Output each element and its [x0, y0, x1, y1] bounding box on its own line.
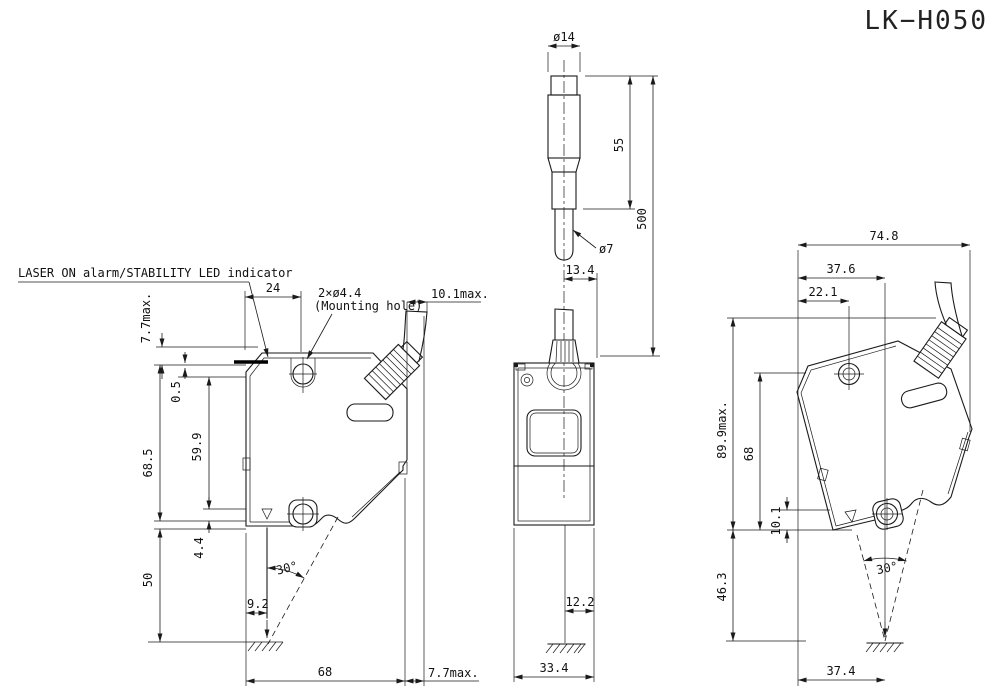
dim-right-foot-height: 10.1 [769, 507, 783, 536]
dim-side-cable-protrusion: 10.1max. [431, 287, 489, 301]
label-slot [347, 404, 393, 421]
dim-connector-len: 55 [612, 138, 626, 152]
dim-front-width: 33.4 [540, 661, 569, 675]
dim-side-spot-offset: 9.2 [247, 597, 269, 611]
cable-gland-front [549, 340, 579, 363]
dim-right-body-height: 68 [742, 447, 756, 461]
dim-right-angle: 30° [875, 559, 899, 577]
dim-side-top-protrusion: 7.7max. [139, 293, 153, 344]
dim-right-to-hole: 22.1 [809, 285, 838, 299]
dim-right-overall-width: 74.8 [870, 229, 899, 243]
dim-side-body-height: 68.5 [141, 449, 155, 478]
dim-side-standoff: 50 [141, 573, 155, 587]
reference-surface-right [726, 641, 903, 652]
cable-gland-right [914, 315, 971, 378]
dim-side-hole-offset: 24 [266, 281, 280, 295]
mount-hole-label-note: (Mounting hole) [314, 299, 422, 313]
right-view: 30° 74.8 37.6 22.1 89.9max. 68 10.1 46.3… [715, 229, 972, 686]
drawing-canvas: LK−H050 ø14 55 500 ø7 13.4 [0, 0, 1000, 694]
reference-surface-front [546, 644, 585, 653]
dim-right-bottom-width: 37.4 [827, 664, 856, 678]
dim-connector-dia: ø14 [553, 30, 575, 44]
screw-bottom-right-view [871, 497, 905, 531]
beam-return [268, 517, 338, 644]
led-indicator-label: LASER ON alarm/STABILITY LED indicator [18, 266, 293, 280]
dim-cable-offset: 13.4 [566, 263, 595, 277]
dim-cable-len: 500 [635, 208, 649, 230]
datum-triangle-right [845, 510, 856, 522]
dim-side-led-height: 0.5 [169, 381, 183, 403]
front-view: 12.2 33.4 [514, 309, 594, 682]
cable-connector-detail: ø14 55 500 ø7 13.4 [548, 30, 660, 500]
dim-side-beam-axis: 59.9 [190, 433, 204, 462]
mounting-hole-top [289, 357, 317, 393]
label-slot-right [900, 381, 949, 409]
technical-drawing-page: LK−H050 ø14 55 500 ø7 13.4 [0, 0, 1000, 694]
reference-surface-side [148, 642, 283, 651]
dim-side-angle: 30° [275, 559, 300, 578]
drawing-title: LK−H050 [864, 6, 988, 36]
dim-right-to-beam: 37.6 [827, 262, 856, 276]
dim-right-standoff: 46.3 [715, 573, 729, 602]
laser-window [527, 410, 581, 456]
dim-side-rear-protrusion: 7.7max. [428, 666, 479, 680]
dim-right-overall-height: 89.9max. [715, 401, 729, 459]
dim-front-spot-offset: 12.2 [566, 595, 595, 609]
dim-side-axis-bottom: 4.4 [192, 537, 206, 559]
front-body [514, 363, 594, 525]
dim-side-width: 68 [318, 665, 332, 679]
mount-hole-label-qty: 2×ø4.4 [318, 286, 361, 300]
datum-triangle [262, 509, 272, 519]
side-view: 30° 7.7max. 0.5 68.5 59.9 4.4 50 [18, 266, 489, 686]
cable-gland-side [364, 339, 425, 400]
dim-cable-dia: ø7 [599, 242, 613, 256]
